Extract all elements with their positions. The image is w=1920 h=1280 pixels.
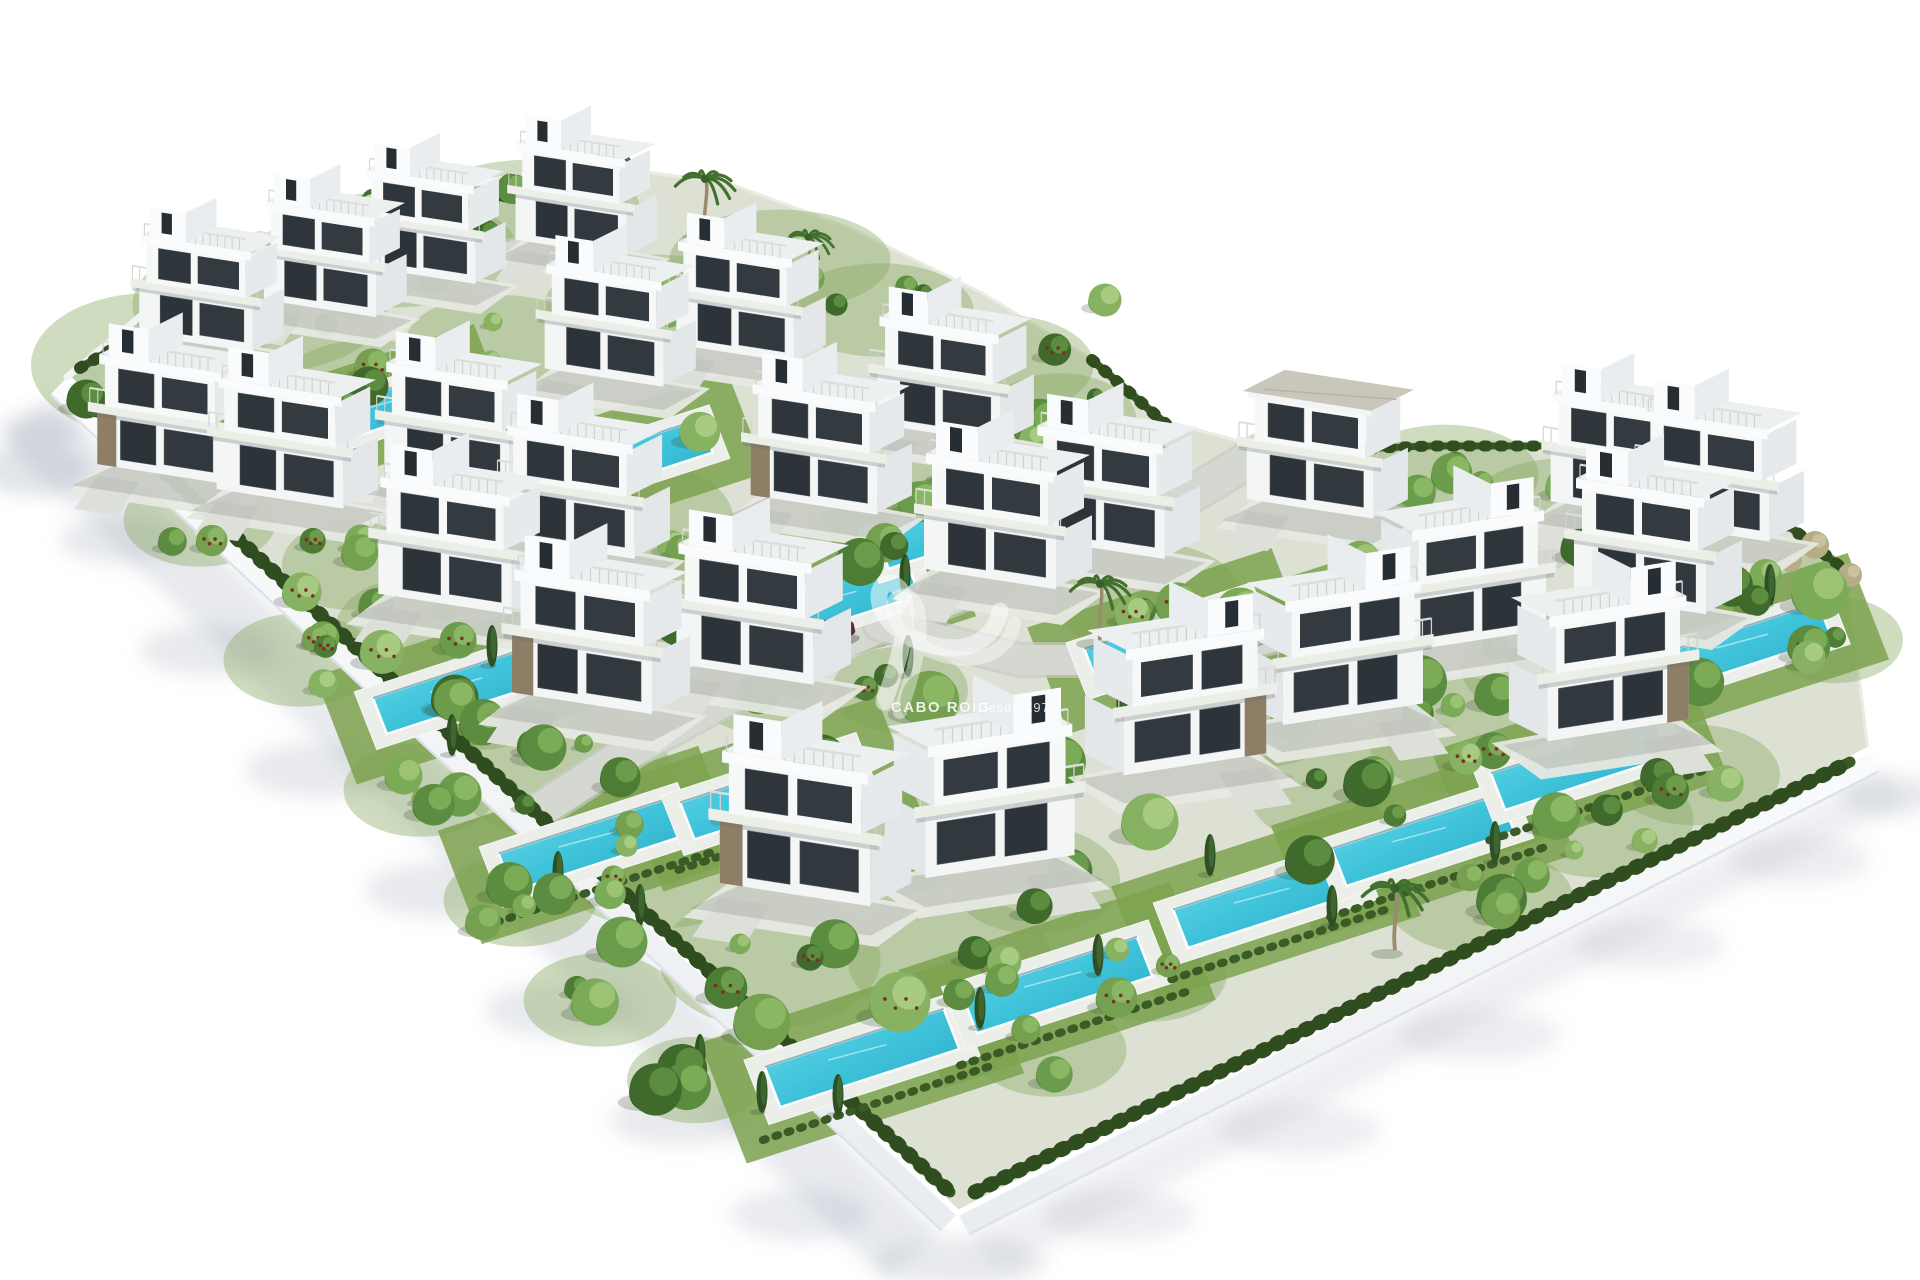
scene-layers: [0, 106, 1920, 1280]
watermark-tagline-text: Desde 1970: [978, 700, 1058, 715]
tree: [618, 1063, 682, 1115]
architectural-render-page: CABO ROIG Desde 1970: [0, 0, 1920, 1280]
watermark-brand-text: CABO ROIG: [891, 699, 991, 716]
villa-development-aerial-render: CABO ROIG Desde 1970: [0, 0, 1920, 1280]
tree: [1081, 283, 1122, 316]
